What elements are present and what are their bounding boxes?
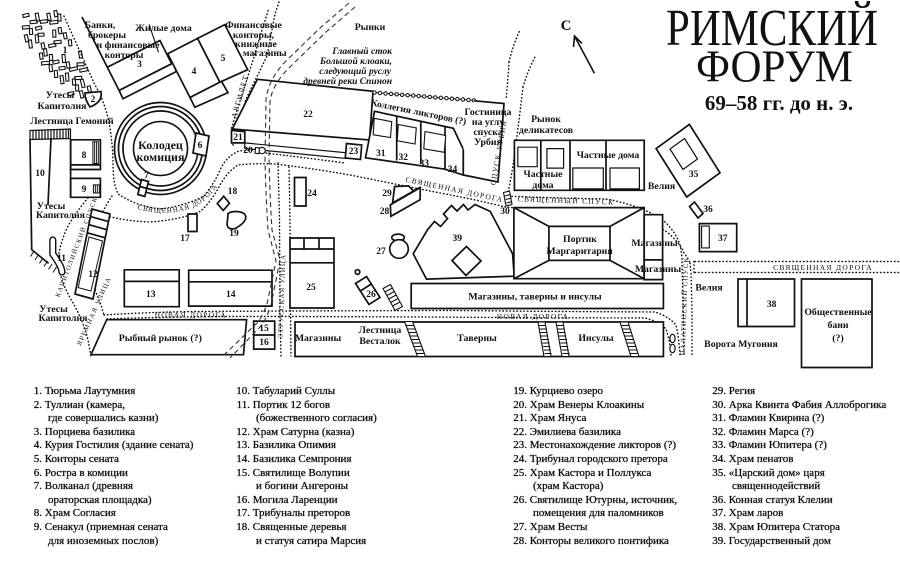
svg-text:Большой клоаки,: Большой клоаки, <box>319 56 392 67</box>
svg-text:Магазины, таверны и инсулы: Магазины, таверны и инсулы <box>468 292 602 303</box>
svg-text:34: 34 <box>448 165 458 175</box>
svg-text:8: 8 <box>82 151 87 161</box>
svg-text:Частные дома: Частные дома <box>577 150 640 161</box>
svg-text:35: 35 <box>689 170 699 180</box>
svg-text:СВЯЩЕННАЯ ДОРОГА: СВЯЩЕННАЯ ДОРОГА <box>773 263 873 272</box>
svg-text:20: 20 <box>243 146 253 156</box>
svg-text:ФОРУМ: ФОРУМ <box>696 42 853 92</box>
svg-text:Магазины: Магазины <box>635 264 682 275</box>
svg-text:Капитолия: Капитолия <box>39 313 89 324</box>
svg-text:Частные: Частные <box>524 169 564 180</box>
svg-text:комиция: комиция <box>137 150 185 164</box>
svg-text:69–58 гг. до н. э.: 69–58 гг. до н. э. <box>705 91 853 115</box>
svg-text:конторы: конторы <box>105 50 144 61</box>
svg-text:22: 22 <box>303 110 313 120</box>
svg-text:25: 25 <box>306 283 316 293</box>
svg-text:15: 15 <box>259 324 269 334</box>
svg-text:17: 17 <box>180 234 190 244</box>
svg-text:Рынки: Рынки <box>355 22 386 33</box>
svg-text:Портик: Портик <box>563 234 597 245</box>
svg-text:магазины: магазины <box>243 48 287 59</box>
svg-text:Магазины: Магазины <box>631 238 678 249</box>
svg-text:НОВАЯ ДОРОГА: НОВАЯ ДОРОГА <box>497 312 569 321</box>
svg-text:Рыбный рынок (?): Рыбный рынок (?) <box>119 333 202 344</box>
svg-text:4: 4 <box>192 67 197 77</box>
svg-text:Лестница: Лестница <box>359 325 402 336</box>
svg-text:Жилые дома: Жилые дома <box>135 23 192 34</box>
svg-text:Таверны: Таверны <box>457 333 497 344</box>
svg-text:деликатесов: деликатесов <box>519 125 573 136</box>
svg-text:следующий руслу: следующий руслу <box>319 66 391 77</box>
svg-text:Велия: Велия <box>648 181 676 192</box>
svg-text:5: 5 <box>221 54 226 64</box>
svg-text:21: 21 <box>233 133 243 143</box>
svg-text:Лестница Гемоний: Лестница Гемоний <box>30 116 114 127</box>
svg-text:ЭТРУССКАЯ УЛИЦА: ЭТРУССКАЯ УЛИЦА <box>278 254 288 339</box>
svg-text:38: 38 <box>767 300 777 310</box>
svg-text:37: 37 <box>718 234 728 244</box>
svg-text:29: 29 <box>382 189 392 199</box>
svg-text:древней реки Спинон: древней реки Спинон <box>303 76 392 87</box>
svg-text:32: 32 <box>399 153 409 163</box>
svg-text:НОВАЯ ДОРОГА: НОВАЯ ДОРОГА <box>155 311 227 320</box>
svg-text:6: 6 <box>198 141 203 151</box>
svg-text:(?): (?) <box>832 333 843 344</box>
svg-text:Главный сток: Главный сток <box>331 46 393 57</box>
svg-text:26: 26 <box>366 290 376 300</box>
svg-text:18: 18 <box>228 187 238 197</box>
svg-text:Ворота Мугония: Ворота Мугония <box>704 339 778 350</box>
svg-text:Маргаритария: Маргаритария <box>546 246 613 257</box>
svg-text:Утесы: Утесы <box>46 90 75 101</box>
svg-text:Общественные: Общественные <box>804 307 872 318</box>
svg-text:2: 2 <box>91 95 96 105</box>
svg-text:Инсулы: Инсулы <box>578 333 614 344</box>
svg-text:Капитолия: Капитолия <box>38 101 88 112</box>
svg-text:33: 33 <box>419 159 429 169</box>
svg-text:бани: бани <box>827 320 848 331</box>
svg-text:28: 28 <box>380 207 390 217</box>
svg-text:19: 19 <box>229 229 239 239</box>
svg-text:36: 36 <box>703 205 713 215</box>
svg-text:11: 11 <box>57 254 66 264</box>
svg-text:13: 13 <box>146 290 156 300</box>
svg-text:Капитолия: Капитолия <box>36 210 86 221</box>
svg-text:7: 7 <box>144 171 149 181</box>
svg-text:31: 31 <box>376 149 386 159</box>
svg-text:С: С <box>561 18 572 34</box>
svg-text:39: 39 <box>452 234 462 244</box>
svg-text:12: 12 <box>88 270 98 280</box>
svg-text:Весталок: Весталок <box>359 336 401 347</box>
svg-text:Рынок: Рынок <box>531 114 561 125</box>
svg-text:1: 1 <box>63 46 68 56</box>
svg-text:30: 30 <box>500 207 510 217</box>
svg-text:Магазины: Магазины <box>295 333 342 344</box>
svg-text:9: 9 <box>82 185 87 195</box>
svg-text:дома: дома <box>532 180 553 191</box>
svg-text:14: 14 <box>226 290 236 300</box>
svg-text:Велия: Велия <box>695 283 723 294</box>
svg-text:27: 27 <box>376 247 386 257</box>
svg-text:23: 23 <box>349 147 359 157</box>
svg-text:СВЯЩЕННЫЙ СПУСК: СВЯЩЕННЫЙ СПУСК <box>518 194 615 206</box>
svg-text:24: 24 <box>307 189 317 199</box>
svg-text:3: 3 <box>137 60 142 70</box>
svg-text:16: 16 <box>259 338 269 348</box>
svg-text:10: 10 <box>35 169 45 179</box>
